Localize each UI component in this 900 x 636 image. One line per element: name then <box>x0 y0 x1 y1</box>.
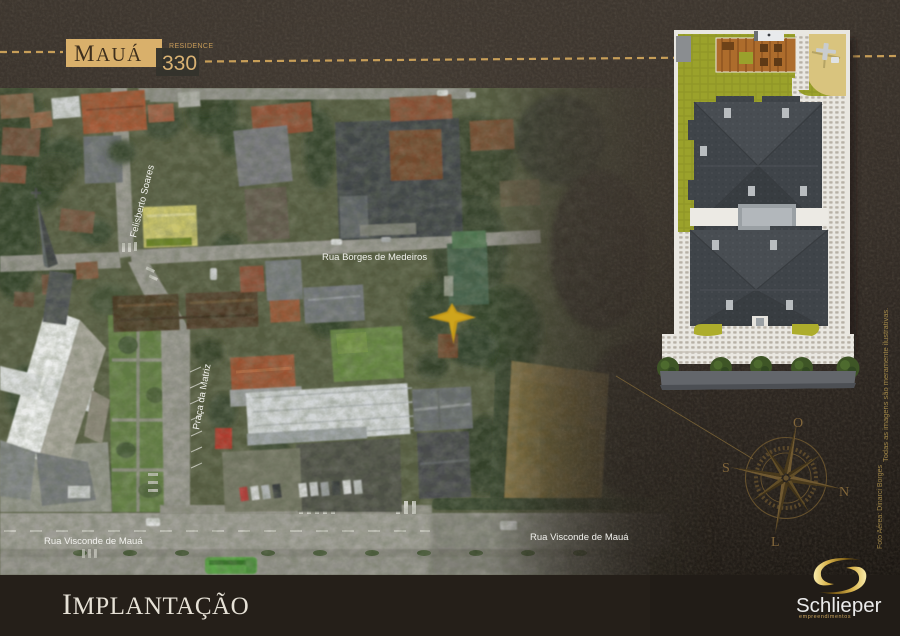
svg-text:O: O <box>793 416 803 431</box>
svg-text:Rua Borges de Medeiros: Rua Borges de Medeiros <box>322 252 427 263</box>
svg-text:IMPLANTAÇÃO: IMPLANTAÇÃO <box>62 588 249 621</box>
svg-text:S: S <box>722 461 730 476</box>
svg-text:Rua Visconde de Mauá: Rua Visconde de Mauá <box>530 532 629 543</box>
svg-text:330: 330 <box>162 52 197 75</box>
svg-text:L: L <box>771 535 780 550</box>
svg-text:Todas as imagens são meramente: Todas as imagens são meramente ilustrati… <box>881 308 890 462</box>
svg-text:Foto Aérea: Dinarci Borges: Foto Aérea: Dinarci Borges <box>877 464 884 549</box>
svg-text:N: N <box>839 485 849 500</box>
svg-text:Rua Visconde de Mauá: Rua Visconde de Mauá <box>44 536 143 547</box>
svg-text:MAUÁ: MAUÁ <box>74 41 143 66</box>
svg-text:empreendimentos: empreendimentos <box>799 614 851 620</box>
